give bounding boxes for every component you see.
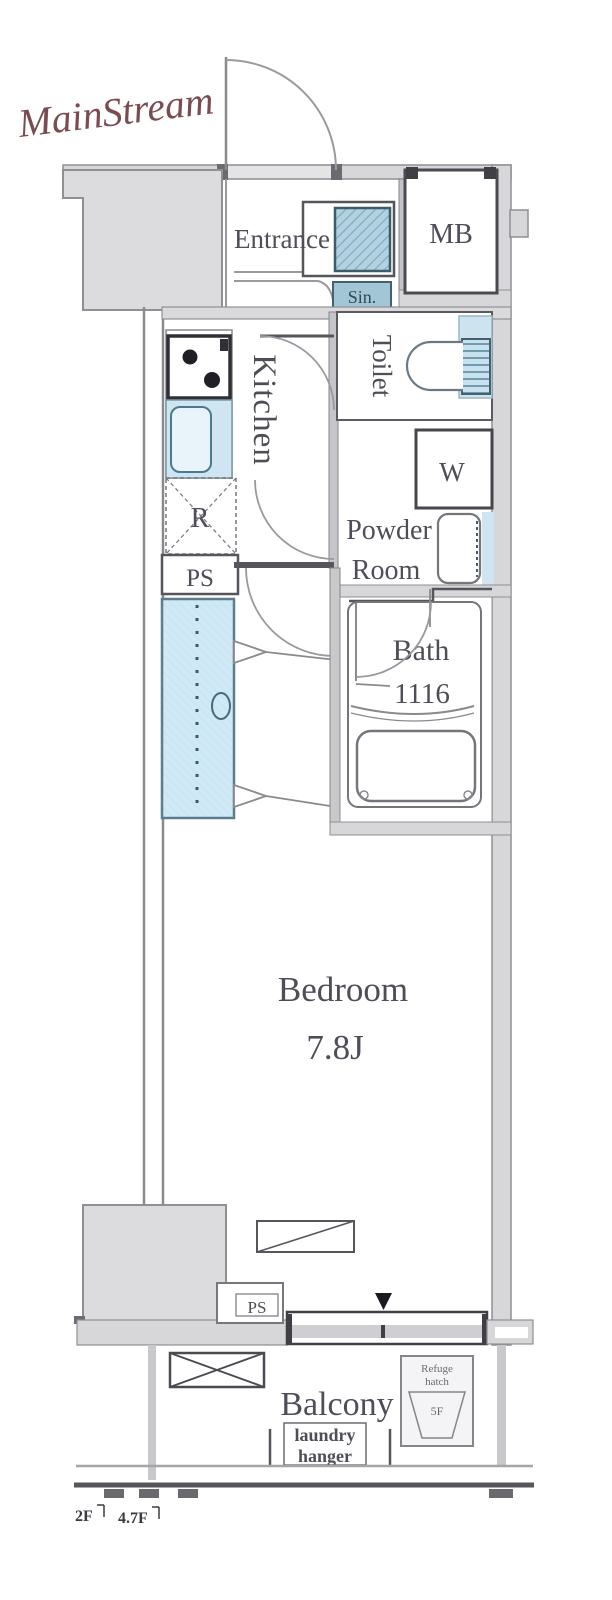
svg-text:PS: PS	[248, 1298, 267, 1317]
svg-text:4.7F: 4.7F	[118, 1510, 148, 1527]
svg-text:Toilet: Toilet	[367, 335, 397, 398]
svg-text:Refuge: Refuge	[421, 1363, 453, 1375]
svg-text:2F: 2F	[75, 1508, 93, 1525]
svg-text:1116: 1116	[394, 678, 450, 710]
svg-text:Entrance: Entrance	[234, 224, 330, 254]
svg-text:W: W	[439, 457, 465, 487]
svg-text:5F: 5F	[431, 1404, 444, 1418]
svg-text:hanger: hanger	[298, 1446, 352, 1466]
svg-text:Sin.: Sin.	[348, 287, 377, 307]
svg-text:Balcony: Balcony	[280, 1386, 393, 1423]
svg-text:hatch: hatch	[425, 1376, 449, 1388]
svg-text:Kitchen: Kitchen	[246, 354, 282, 465]
svg-text:MB: MB	[429, 219, 473, 250]
svg-text:Powder: Powder	[346, 515, 432, 546]
svg-text:laundry: laundry	[294, 1425, 355, 1445]
svg-text:Bedroom: Bedroom	[278, 970, 408, 1009]
svg-text:7.8J: 7.8J	[306, 1028, 363, 1067]
svg-text:Room: Room	[352, 555, 421, 586]
svg-text:R: R	[191, 503, 210, 534]
svg-text:PS: PS	[186, 565, 214, 592]
